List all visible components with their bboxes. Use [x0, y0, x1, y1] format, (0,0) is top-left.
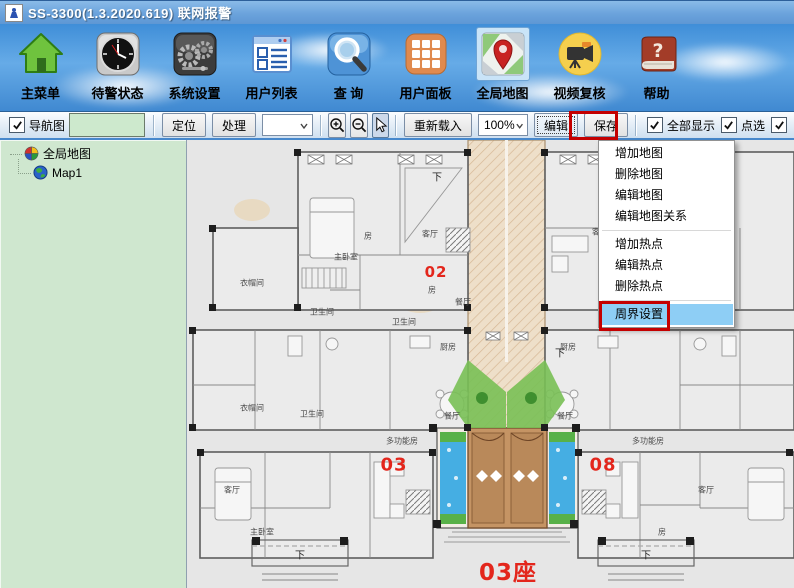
toolbar-separator: [635, 115, 637, 136]
toolbar-item-user-panel[interactable]: 用户面板: [387, 27, 464, 102]
stair-down-label: 下: [555, 345, 565, 360]
room-label: 餐厅: [455, 297, 471, 308]
toolbar-item-label: 用户面板: [399, 83, 451, 102]
select-cursor-button[interactable]: [372, 113, 389, 138]
edit-context-menu: 增加地图 删除地图 编辑地图 编辑地图关系 增加热点 编辑热点 删除热点 周界设…: [598, 140, 735, 328]
menu-item-delete-map[interactable]: 删除地图: [600, 164, 733, 185]
unit-number-label: 03: [380, 455, 407, 476]
reload-button[interactable]: 重新载入: [404, 113, 472, 137]
tree-item-label: 全局地图: [43, 145, 91, 162]
help-icon: ?: [634, 31, 680, 77]
room-label: 房: [364, 231, 372, 242]
room-label: 厨房: [440, 342, 456, 353]
toolbar-item-standby-status[interactable]: 待警状态: [79, 27, 156, 102]
stair-down-label: 下: [432, 169, 442, 184]
pick-checkbox-label: 点选: [741, 117, 765, 134]
tree-item-label: Map1: [52, 166, 82, 180]
room-label: 卫生间: [310, 307, 334, 318]
save-button[interactable]: 保存: [584, 113, 628, 137]
app-icon: [5, 4, 23, 22]
room-label: 多功能房: [632, 436, 664, 447]
toolbar-item-global-map[interactable]: 全局地图: [464, 27, 541, 102]
tree-item-global-map[interactable]: 全局地图: [6, 144, 186, 163]
tree-connector: [18, 159, 31, 174]
menu-item-delete-hotspot[interactable]: 删除热点: [600, 276, 733, 297]
tree-connector: [10, 140, 22, 155]
menu-item-perimeter-settings[interactable]: 周界设置: [600, 304, 733, 325]
room-label: 房: [428, 285, 436, 296]
unit-number-label: 02: [425, 263, 448, 281]
toolbar-separator: [320, 115, 322, 136]
cursor-arrow-icon: [373, 117, 388, 133]
zoom-out-button[interactable]: [350, 113, 368, 138]
room-label: 主卧室: [334, 252, 358, 263]
room-label: 客厅: [422, 229, 438, 240]
room-label: 卫生间: [392, 317, 416, 328]
zoom-out-icon: [351, 117, 367, 133]
room-label: 主卧室: [250, 527, 274, 538]
app-window: SS-3300(1.3.2020.619) 联网报警 主菜单 待警状态: [0, 0, 794, 588]
map-toolbar: 导航图 定位 处理 重新载入 100% 编辑 保存 全部显示 点选: [0, 112, 794, 140]
locate-button[interactable]: 定位: [162, 113, 206, 137]
chevron-down-icon: [515, 121, 524, 130]
room-label: 房: [658, 527, 666, 538]
zoom-level-value: 100%: [484, 118, 515, 132]
grid-icon: [403, 31, 449, 77]
menu-item-add-hotspot[interactable]: 增加热点: [600, 234, 733, 255]
toolbar-item-video-review[interactable]: 视频复核: [541, 27, 618, 102]
toolbar-item-main-menu[interactable]: 主菜单: [2, 27, 79, 102]
toolbar-item-user-list[interactable]: 用户列表: [233, 27, 310, 102]
toolbar-item-label: 系统设置: [168, 83, 220, 102]
room-label: 卫生间: [300, 409, 324, 420]
menu-item-add-map[interactable]: 增加地图: [600, 143, 733, 164]
home-icon: [18, 31, 64, 77]
toolbar-item-label: 主菜单: [21, 83, 60, 102]
question-mark-icon: ?: [652, 40, 663, 62]
room-label: 多功能房: [386, 436, 418, 447]
toolbar-item-label: 用户列表: [245, 83, 297, 102]
room-label: 衣帽间: [240, 278, 264, 289]
show-all-checkbox[interactable]: [647, 117, 663, 133]
zoom-in-icon: [329, 117, 345, 133]
room-label: 客厅: [224, 485, 240, 496]
toolbar-separator: [395, 115, 397, 136]
unit-number-label: 08: [589, 455, 616, 476]
stair-down-label: 下: [295, 547, 305, 562]
show-all-checkbox-label: 全部显示: [667, 117, 715, 134]
edit-button[interactable]: 编辑: [534, 113, 578, 137]
main-toolbar: 主菜单 待警状态 系统设置: [0, 24, 794, 112]
toolbar-item-label: 帮助: [643, 83, 669, 102]
title-bar: SS-3300(1.3.2020.619) 联网报警: [0, 0, 794, 24]
user-combo[interactable]: [262, 114, 313, 136]
menu-item-edit-map-relation[interactable]: 编辑地图关系: [600, 206, 733, 227]
room-label: 餐厅: [444, 411, 460, 422]
unit-number-label: 03座: [479, 553, 537, 587]
nav-search-input[interactable]: [69, 113, 145, 137]
menu-item-edit-map[interactable]: 编辑地图: [600, 185, 733, 206]
menu-separator: [602, 300, 731, 301]
user-list-icon: [249, 31, 295, 77]
zoom-level-combo[interactable]: 100%: [478, 114, 528, 136]
chevron-down-icon: [299, 121, 309, 130]
menu-separator: [602, 230, 731, 231]
clock-icon: [95, 31, 141, 77]
nav-map-checkbox-label: 导航图: [29, 117, 65, 134]
toolbar-item-query[interactable]: 查 询: [310, 27, 387, 102]
toolbar-separator: [153, 115, 155, 136]
toolbar-item-help[interactable]: ? 帮助: [618, 27, 695, 102]
room-label: 客厅: [698, 485, 714, 496]
search-icon: [326, 31, 372, 77]
clipped-checkbox[interactable]: [771, 117, 787, 133]
zoom-in-button[interactable]: [328, 113, 346, 138]
room-label: 餐厅: [557, 411, 573, 422]
menu-item-edit-hotspot[interactable]: 编辑热点: [600, 255, 733, 276]
room-label: 衣帽间: [240, 403, 264, 414]
process-button[interactable]: 处理: [212, 113, 256, 137]
video-icon: [557, 31, 603, 77]
pick-checkbox[interactable]: [721, 117, 737, 133]
toolbar-item-label: 全局地图: [476, 83, 528, 102]
toolbar-item-label: 查 询: [334, 83, 364, 102]
toolbar-item-system-settings[interactable]: 系统设置: [156, 27, 233, 102]
tree-item-map1[interactable]: Map1: [6, 163, 186, 182]
toolbar-item-label: 视频复核: [553, 83, 605, 102]
window-title: SS-3300(1.3.2020.619) 联网报警: [28, 3, 232, 22]
gears-icon: [172, 31, 218, 77]
toolbar-item-label: 待警状态: [91, 83, 143, 102]
stair-down-label: 下: [641, 547, 651, 562]
nav-map-checkbox[interactable]: [9, 117, 25, 133]
map-tree-panel: 全局地图 Map1: [0, 140, 187, 588]
globe-icon: [33, 165, 48, 180]
map-icon: [480, 31, 526, 77]
